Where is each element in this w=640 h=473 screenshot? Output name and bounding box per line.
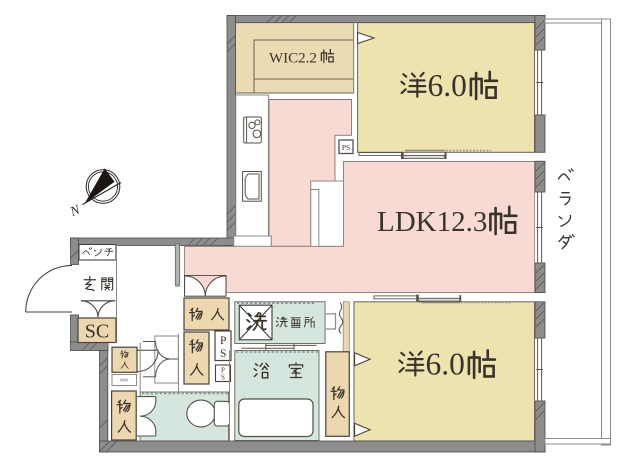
svg-text:PS: PS bbox=[342, 143, 350, 152]
svg-text:WIC2.2: WIC2.2 bbox=[269, 51, 317, 67]
svg-text:P: P bbox=[220, 335, 226, 347]
svg-text:LDK12.3: LDK12.3 bbox=[377, 206, 487, 238]
svg-text:S: S bbox=[220, 348, 226, 360]
svg-text:SC: SC bbox=[85, 321, 109, 343]
svg-text:S: S bbox=[221, 374, 225, 382]
svg-text:6.0: 6.0 bbox=[426, 347, 465, 382]
svg-text:6.0: 6.0 bbox=[428, 68, 467, 103]
